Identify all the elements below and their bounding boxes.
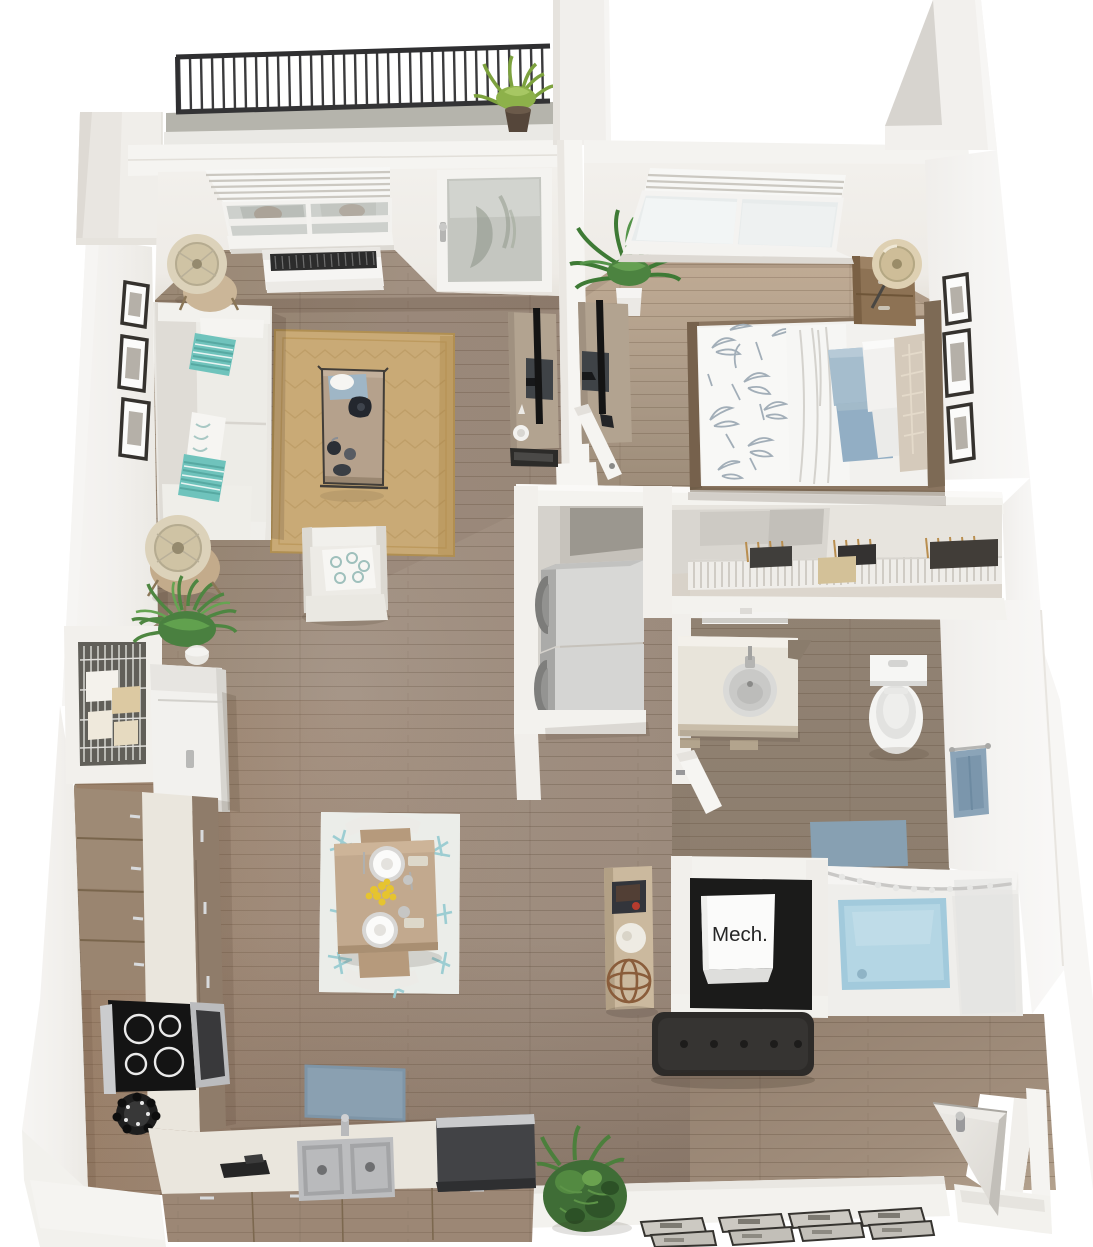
svg-text:Mech.: Mech. (712, 923, 768, 946)
